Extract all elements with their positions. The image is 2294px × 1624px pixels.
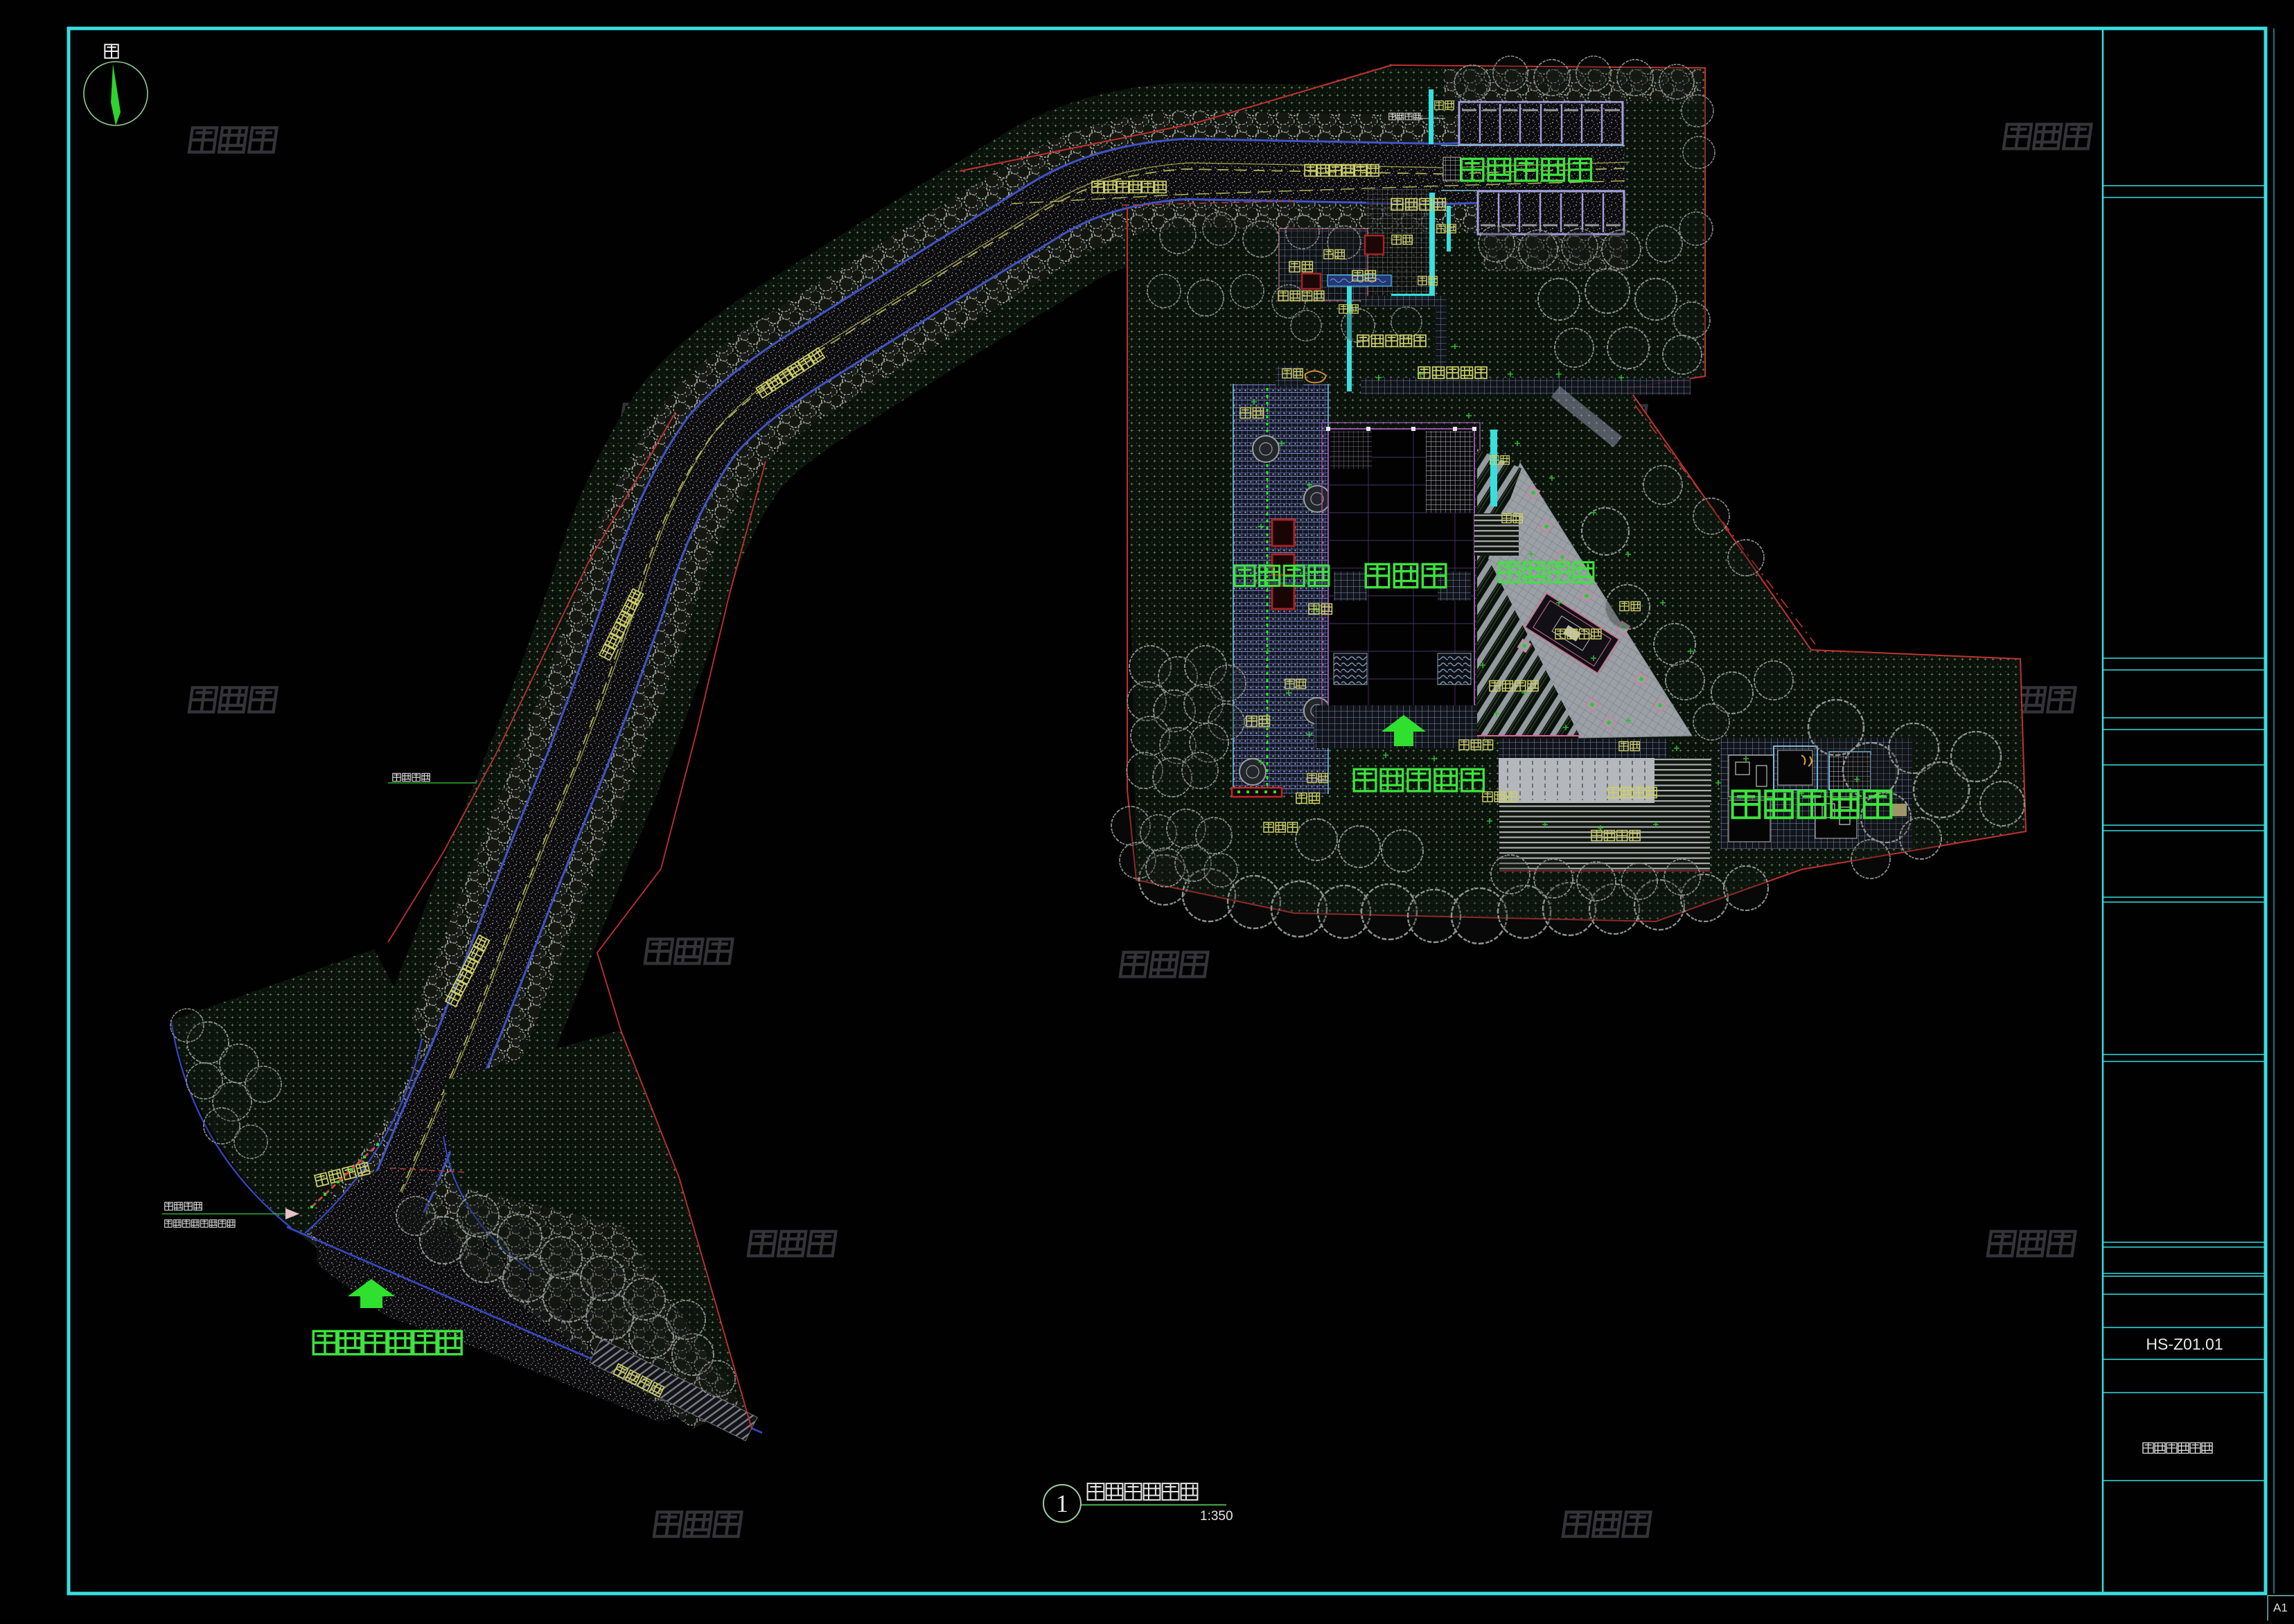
svg-text:A1: A1 <box>2273 1601 2288 1614</box>
svg-text:1:350: 1:350 <box>1200 1509 1233 1524</box>
svg-text:1: 1 <box>1056 1490 1068 1517</box>
svg-text:HS-Z01.01: HS-Z01.01 <box>2146 1335 2223 1353</box>
